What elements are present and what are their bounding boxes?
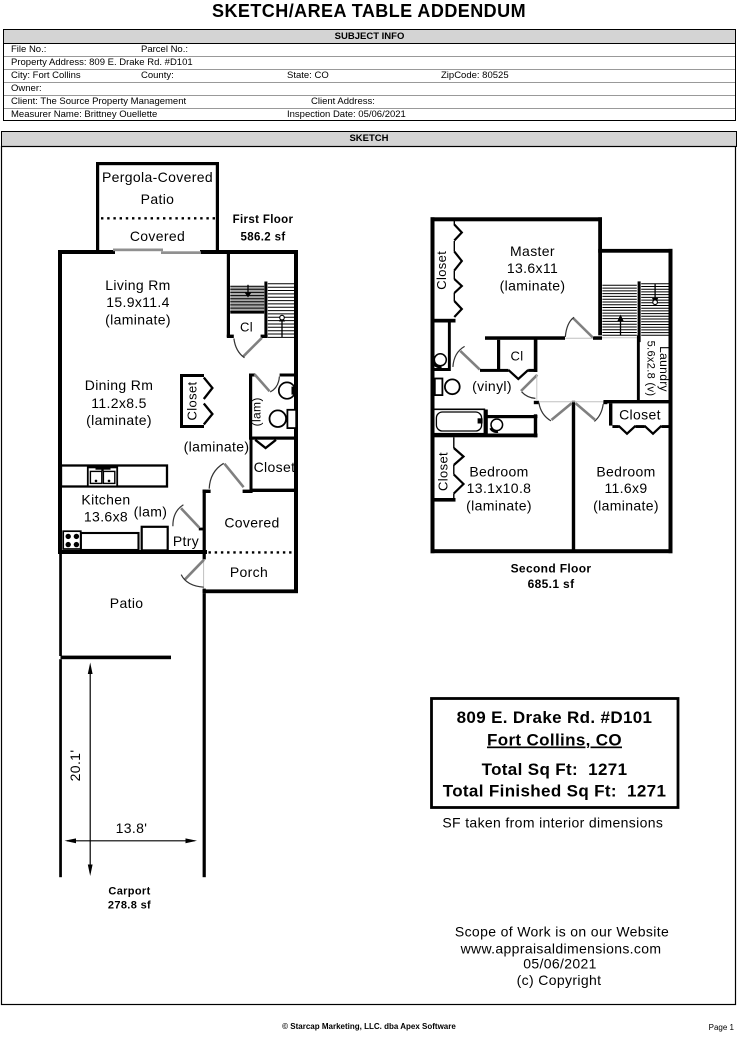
- svg-text:(laminate): (laminate): [500, 278, 566, 294]
- svg-text:Covered: Covered: [224, 515, 279, 531]
- svg-text:Patio: Patio: [141, 191, 175, 207]
- svg-text:11.2x8.5: 11.2x8.5: [91, 395, 146, 411]
- svg-text:Closet: Closet: [434, 251, 449, 290]
- svg-text:15.9x11.4: 15.9x11.4: [106, 294, 170, 310]
- svg-text:20.1': 20.1': [67, 750, 83, 782]
- svg-text:Closet: Closet: [619, 406, 661, 422]
- svg-text:Cl: Cl: [240, 320, 253, 335]
- svg-text:Living Rm: Living Rm: [105, 277, 170, 293]
- svg-text:809 E. Drake Rd. #D101: 809 E. Drake Rd. #D101: [457, 708, 653, 727]
- svg-text:586.2 sf: 586.2 sf: [241, 232, 286, 244]
- svg-text:Total Sq Ft: 1271: Total Sq Ft: 1271: [482, 760, 628, 779]
- svg-text:Ptry: Ptry: [173, 533, 199, 549]
- svg-text:13.6x8: 13.6x8: [84, 509, 128, 525]
- svg-text:5.6x2.8 (v): 5.6x2.8 (v): [644, 341, 656, 397]
- svg-text:Bedroom: Bedroom: [596, 464, 655, 480]
- svg-text:Closet: Closet: [436, 452, 451, 491]
- svg-text:(laminate): (laminate): [466, 498, 532, 514]
- svg-text:(lam): (lam): [250, 397, 264, 426]
- svg-text:(lam): (lam): [134, 504, 168, 520]
- svg-text:13.6x11: 13.6x11: [507, 260, 558, 276]
- svg-text:First Floor: First Floor: [233, 214, 294, 226]
- svg-text:278.8 sf: 278.8 sf: [108, 900, 151, 912]
- svg-text:11.6x9: 11.6x9: [604, 480, 647, 496]
- svg-text:Closet: Closet: [254, 459, 296, 475]
- svg-text:www.appraisaldimensions.com: www.appraisaldimensions.com: [460, 941, 662, 957]
- svg-text:05/06/2021: 05/06/2021: [523, 956, 597, 972]
- svg-text:Total Finished Sq Ft: 1271: Total Finished Sq Ft: 1271: [443, 782, 667, 801]
- svg-text:Second Floor: Second Floor: [511, 562, 592, 576]
- svg-text:Scope of Work is on our Websit: Scope of Work is on our Website: [455, 924, 669, 940]
- svg-text:Cl: Cl: [511, 349, 524, 364]
- svg-text:(laminate): (laminate): [105, 312, 171, 328]
- svg-text:Kitchen: Kitchen: [81, 492, 130, 508]
- svg-text:Master: Master: [510, 243, 555, 259]
- svg-text:SF taken from interior dimensi: SF taken from interior dimensions: [442, 815, 663, 831]
- svg-text:Laundry: Laundry: [657, 346, 671, 392]
- svg-text:Carport: Carport: [108, 885, 150, 897]
- svg-text:(c) Copyright: (c) Copyright: [517, 972, 602, 988]
- svg-text:Dining Rm: Dining Rm: [85, 377, 154, 393]
- svg-text:(laminate): (laminate): [184, 439, 250, 455]
- svg-text:Covered: Covered: [130, 228, 185, 244]
- svg-text:(vinyl): (vinyl): [472, 378, 512, 394]
- svg-text:Porch: Porch: [230, 564, 268, 580]
- svg-text:13.8': 13.8': [116, 820, 148, 836]
- svg-text:Bedroom: Bedroom: [469, 464, 528, 480]
- svg-text:13.1x10.8: 13.1x10.8: [467, 480, 532, 496]
- svg-text:(laminate): (laminate): [86, 412, 152, 428]
- svg-text:Closet: Closet: [185, 381, 200, 420]
- svg-text:(laminate): (laminate): [593, 498, 659, 514]
- svg-text:Pergola-Covered: Pergola-Covered: [102, 169, 213, 185]
- svg-text:Fort Collins, CO: Fort Collins, CO: [487, 731, 622, 750]
- svg-text:Patio: Patio: [110, 595, 144, 611]
- svg-text:685.1 sf: 685.1 sf: [528, 577, 575, 591]
